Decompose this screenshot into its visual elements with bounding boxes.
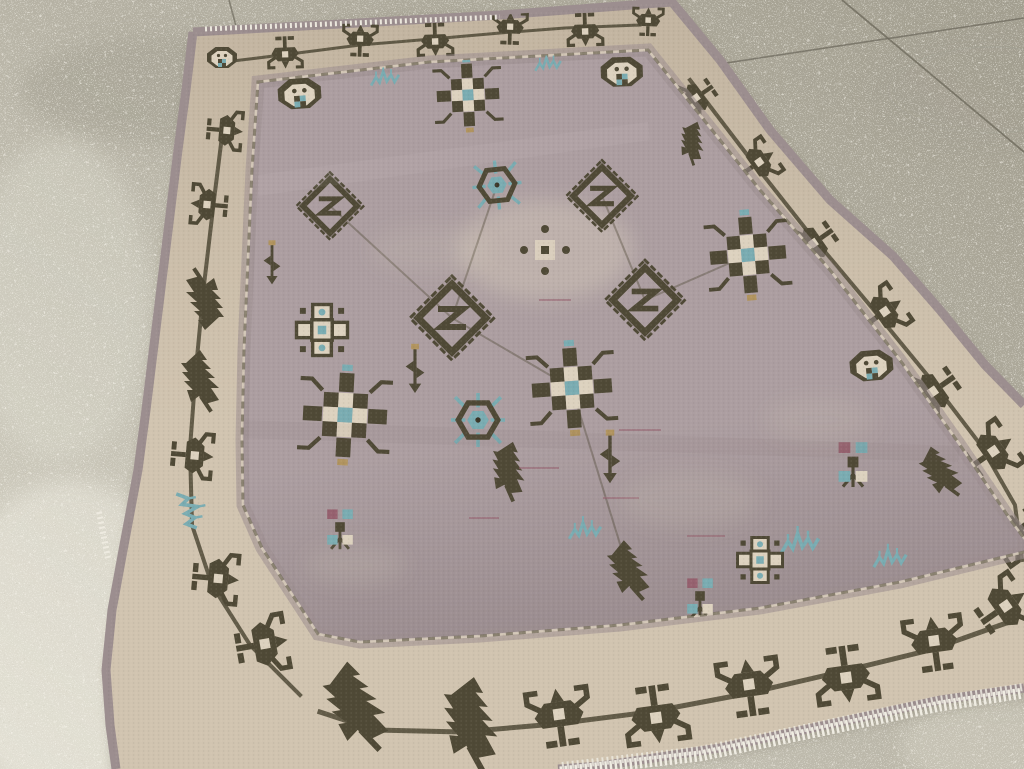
- scene-svg: Vintage geometric tribal rug on a speckl…: [0, 0, 1024, 769]
- photo-stage: Vintage geometric tribal rug on a speckl…: [0, 0, 1024, 769]
